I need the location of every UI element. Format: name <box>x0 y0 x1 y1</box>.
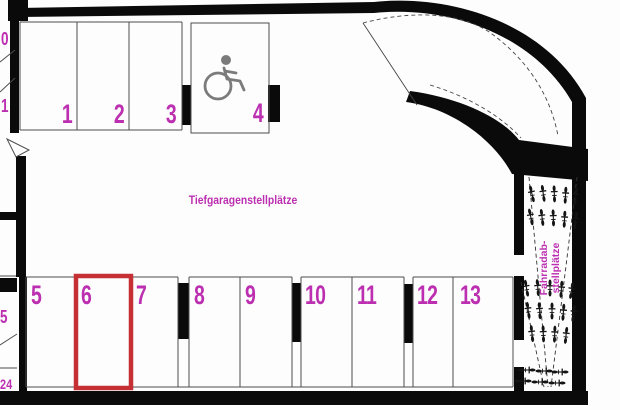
pillar <box>404 284 413 343</box>
edge-label-bottom-a: 5 <box>0 308 8 326</box>
pillar <box>292 283 301 342</box>
space-label-4: 4 <box>226 100 263 127</box>
pillar <box>268 85 280 122</box>
bicycle-icon <box>528 325 537 343</box>
edge-label-top-a: 0 <box>1 30 9 48</box>
bicycle-icon <box>550 209 557 226</box>
bike-area-label: Fahrradab- stellplätze <box>539 235 563 301</box>
bicycle-icon <box>536 368 553 375</box>
space-label-8: 8 <box>194 282 204 309</box>
left-wall-block <box>0 278 17 292</box>
space-label-2: 2 <box>87 101 124 128</box>
edge-label-top-b: 1 <box>1 97 9 115</box>
bicycle-icon <box>549 303 556 320</box>
bicycle-icon <box>526 208 536 226</box>
space-label-9: 9 <box>245 282 255 309</box>
bicycle-icon <box>561 211 569 228</box>
space-label-6: 6 <box>81 282 91 309</box>
left-wall-upper <box>10 0 19 133</box>
bicycle-icon <box>562 187 570 204</box>
bicycle-icon <box>539 184 548 202</box>
bicycle-icon <box>562 327 571 345</box>
bicycle-icon <box>551 185 558 202</box>
bicycle-icon <box>551 326 558 343</box>
wheelchair-icon <box>205 55 244 99</box>
ramp-outer-wall <box>374 1 586 405</box>
edge-label-bottom-b: 24 <box>0 377 12 391</box>
space-label-7: 7 <box>136 282 146 309</box>
pillar <box>182 85 191 125</box>
bicycle-icon <box>536 302 544 319</box>
bike-area-wall-segment <box>514 276 524 340</box>
bike-area-wall-segment <box>514 171 524 255</box>
bottom-wall <box>0 391 588 405</box>
door-swing <box>7 139 29 157</box>
bike-area-label-line1: Fahrradab- <box>539 235 551 301</box>
left-wall-stub <box>0 212 17 220</box>
bicycle-icon <box>549 380 566 387</box>
bicycle-icon <box>552 369 569 376</box>
pillar <box>178 283 189 339</box>
plan-title: Tiefgaragenstellplätze <box>173 196 313 208</box>
bicycle-icon <box>524 301 533 319</box>
space-label-13: 13 <box>460 282 480 309</box>
space-label-1: 1 <box>35 101 72 128</box>
space-label-10: 10 <box>305 282 325 309</box>
space-label-12: 12 <box>417 282 437 309</box>
space-label-5: 5 <box>31 282 41 309</box>
space-label-3: 3 <box>139 101 176 128</box>
left-wall-mid <box>16 156 26 277</box>
ramp-inner-wall <box>406 91 588 181</box>
garage-floor-plan: Tiefgaragenstellplätze Fahrradab- stellp… <box>0 0 620 410</box>
bicycle-icon <box>532 379 549 386</box>
bicycle-icon <box>538 209 547 227</box>
bicycle-icon <box>540 325 547 342</box>
bike-area-label-line2: stellplätze <box>551 235 563 301</box>
space-label-11: 11 <box>357 282 376 309</box>
bicycle-icon <box>527 185 537 203</box>
top-wall <box>18 2 374 17</box>
